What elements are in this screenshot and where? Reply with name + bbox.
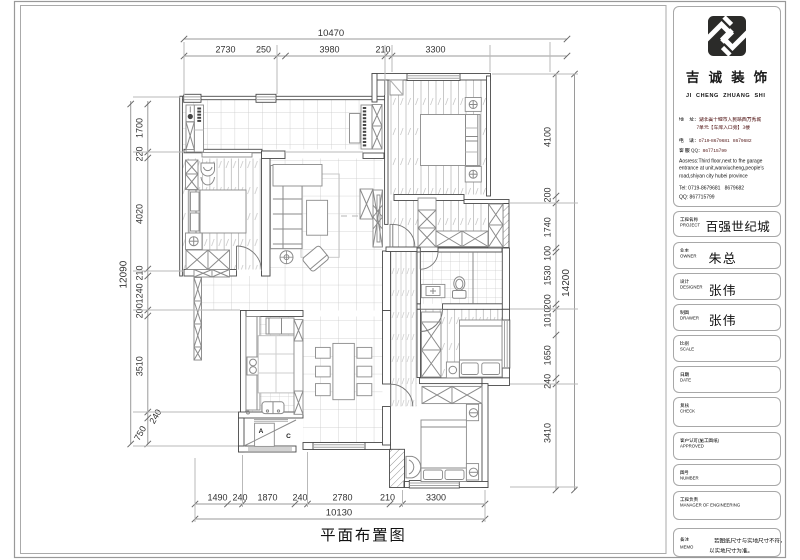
svg-text:200: 200: [134, 303, 144, 318]
svg-text:240: 240: [232, 493, 247, 503]
svg-text:3410: 3410: [543, 423, 553, 443]
svg-text:200: 200: [543, 294, 553, 309]
svg-text:1240: 1240: [134, 283, 144, 303]
svg-text:220: 220: [134, 146, 144, 161]
svg-text:1700: 1700: [134, 118, 144, 138]
svg-text:250: 250: [256, 45, 271, 55]
svg-text:12090: 12090: [118, 260, 129, 288]
svg-text:3300: 3300: [426, 493, 446, 503]
svg-text:2780: 2780: [332, 493, 352, 503]
svg-text:200: 200: [543, 187, 553, 202]
svg-text:100: 100: [543, 246, 553, 261]
svg-text:1010: 1010: [543, 307, 553, 327]
svg-text:1740: 1740: [543, 217, 553, 237]
svg-text:3300: 3300: [425, 45, 445, 55]
svg-text:3980: 3980: [319, 45, 339, 55]
svg-text:C: C: [286, 433, 291, 440]
svg-text:4020: 4020: [134, 204, 144, 224]
svg-text:1870: 1870: [257, 493, 277, 503]
svg-text:210: 210: [375, 45, 390, 55]
svg-text:240: 240: [543, 374, 553, 389]
svg-text:4100: 4100: [543, 127, 553, 147]
svg-text:1530: 1530: [543, 265, 553, 285]
svg-text:1650: 1650: [543, 345, 553, 365]
svg-text:14200: 14200: [561, 269, 572, 297]
svg-text:平面布置图: 平面布置图: [320, 524, 407, 546]
svg-text:210: 210: [134, 265, 144, 280]
svg-text:10470: 10470: [318, 28, 344, 39]
svg-text:A: A: [259, 428, 264, 435]
svg-text:3510: 3510: [134, 356, 144, 376]
svg-text:10130: 10130: [326, 508, 352, 519]
svg-text:240: 240: [292, 493, 307, 503]
svg-text:750: 750: [132, 424, 148, 442]
svg-text:210: 210: [380, 493, 395, 503]
svg-text:2730: 2730: [215, 45, 235, 55]
svg-text:1490: 1490: [207, 493, 227, 503]
